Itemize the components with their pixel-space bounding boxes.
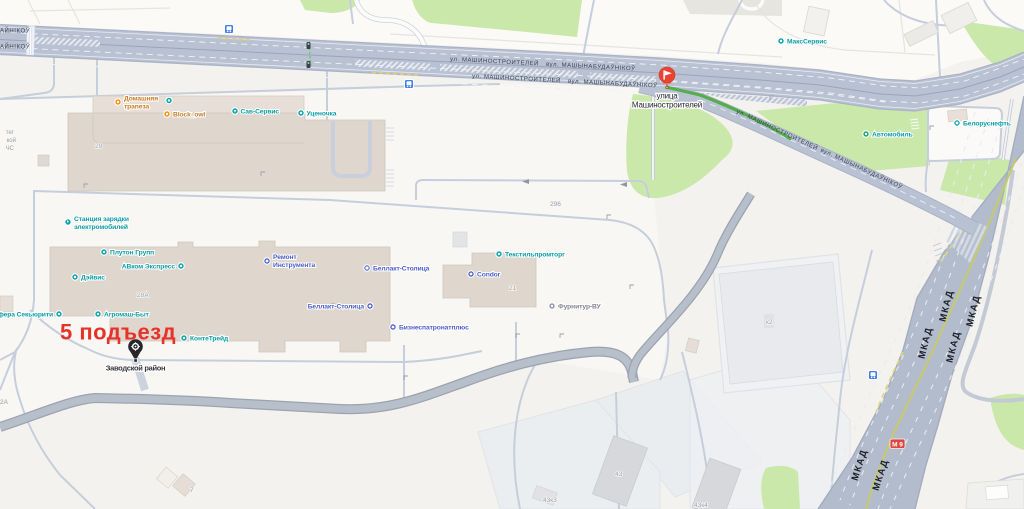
svg-text:Дэйвис: Дэйвис xyxy=(81,274,105,282)
svg-text:Block_owl: Block_owl xyxy=(173,112,205,119)
svg-text:21: 21 xyxy=(509,285,517,292)
svg-text:ЧС: ЧС xyxy=(6,146,15,152)
svg-text:улица: улица xyxy=(657,92,679,101)
svg-text:43: 43 xyxy=(615,471,623,478)
svg-text:296: 296 xyxy=(550,201,561,208)
svg-text:М 9: М 9 xyxy=(892,442,903,449)
svg-text:АЙНІКОЎ: АЙНІКОЎ xyxy=(0,27,30,35)
svg-text:Плутон Групп: Плутон Групп xyxy=(110,250,154,257)
svg-text:Станция зарядки: Станция зарядки xyxy=(74,216,129,223)
svg-text:электромобилей: электромобилей xyxy=(74,223,128,231)
svg-text:трапеза: трапеза xyxy=(124,104,149,111)
svg-text:28А: 28А xyxy=(137,292,149,299)
svg-text:Агромаш-Быт: Агромаш-Быт xyxy=(104,312,150,319)
svg-text:Сав-Сервис: Сав-Сервис xyxy=(241,109,280,116)
svg-text:Condor: Condor xyxy=(477,272,501,279)
svg-text:Автомобиль: Автомобиль xyxy=(872,131,913,139)
svg-text:КонтеТрейд: КонтеТрейд xyxy=(190,335,229,343)
svg-text:43к3: 43к3 xyxy=(543,497,557,504)
svg-text:2А: 2А xyxy=(0,399,9,406)
svg-text:29: 29 xyxy=(95,143,103,150)
svg-text:АЙНІКОЎ: АЙНІКОЎ xyxy=(0,43,30,51)
svg-text:тег: тег xyxy=(6,130,15,136)
svg-text:Беллакт-Столица: Беллакт-Столица xyxy=(308,304,365,311)
svg-text:кой: кой xyxy=(7,137,16,144)
svg-text:АВком Экспресс: АВком Экспресс xyxy=(122,264,176,271)
svg-text:Уценочка: Уценочка xyxy=(307,111,337,118)
svg-text:Белоруснефть: Белоруснефть xyxy=(963,121,1011,128)
svg-text:Машиностроителей: Машиностроителей xyxy=(632,101,702,110)
svg-text:Заводской район: Заводской район xyxy=(106,364,166,373)
svg-text:Домашняя: Домашняя xyxy=(124,96,158,103)
svg-text:Сфера Секьюрити: Сфера Секьюрити xyxy=(0,312,53,319)
svg-text:к2: к2 xyxy=(766,319,773,326)
svg-text:5 подъезд: 5 подъезд xyxy=(60,320,176,345)
svg-text:Бизнеспатронатплюс: Бизнеспатронатплюс xyxy=(399,325,469,332)
svg-text:Фурнитур-ВУ: Фурнитур-ВУ xyxy=(558,304,602,311)
svg-text:Инструмента: Инструмента xyxy=(273,262,315,269)
svg-text:Беллакт-Столица: Беллакт-Столица xyxy=(373,266,430,273)
svg-text:Ремонт: Ремонт xyxy=(273,254,297,261)
svg-text:Текстильпромторг: Текстильпромторг xyxy=(505,252,565,259)
svg-text:7: 7 xyxy=(190,487,194,494)
svg-text:МаксСервис: МаксСервис xyxy=(787,39,827,46)
svg-text:43к4: 43к4 xyxy=(694,502,708,509)
